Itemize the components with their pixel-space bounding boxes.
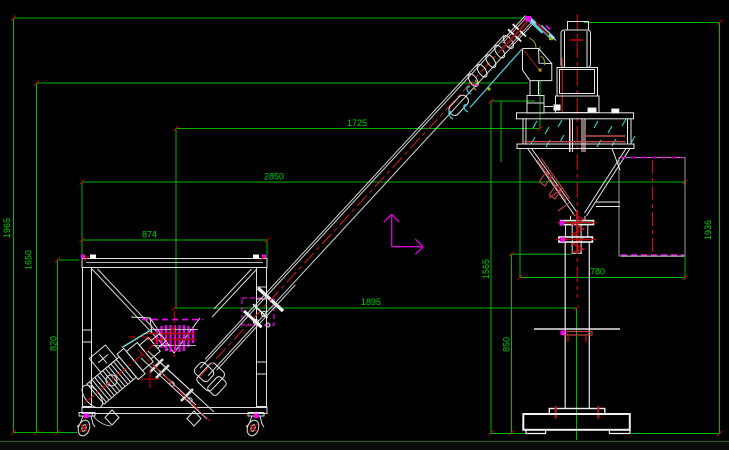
svg-text:1650: 1650	[24, 250, 34, 270]
svg-text:1725: 1725	[347, 118, 367, 128]
svg-text:2850: 2850	[264, 172, 284, 182]
svg-text:1936: 1936	[703, 220, 713, 240]
svg-text:1565: 1565	[481, 259, 491, 279]
svg-text:850: 850	[502, 337, 512, 352]
svg-text:1895: 1895	[361, 297, 381, 307]
svg-text:820: 820	[49, 336, 59, 351]
svg-text:874: 874	[142, 230, 157, 240]
svg-text:1965: 1965	[2, 218, 12, 238]
svg-text:780: 780	[590, 267, 605, 277]
